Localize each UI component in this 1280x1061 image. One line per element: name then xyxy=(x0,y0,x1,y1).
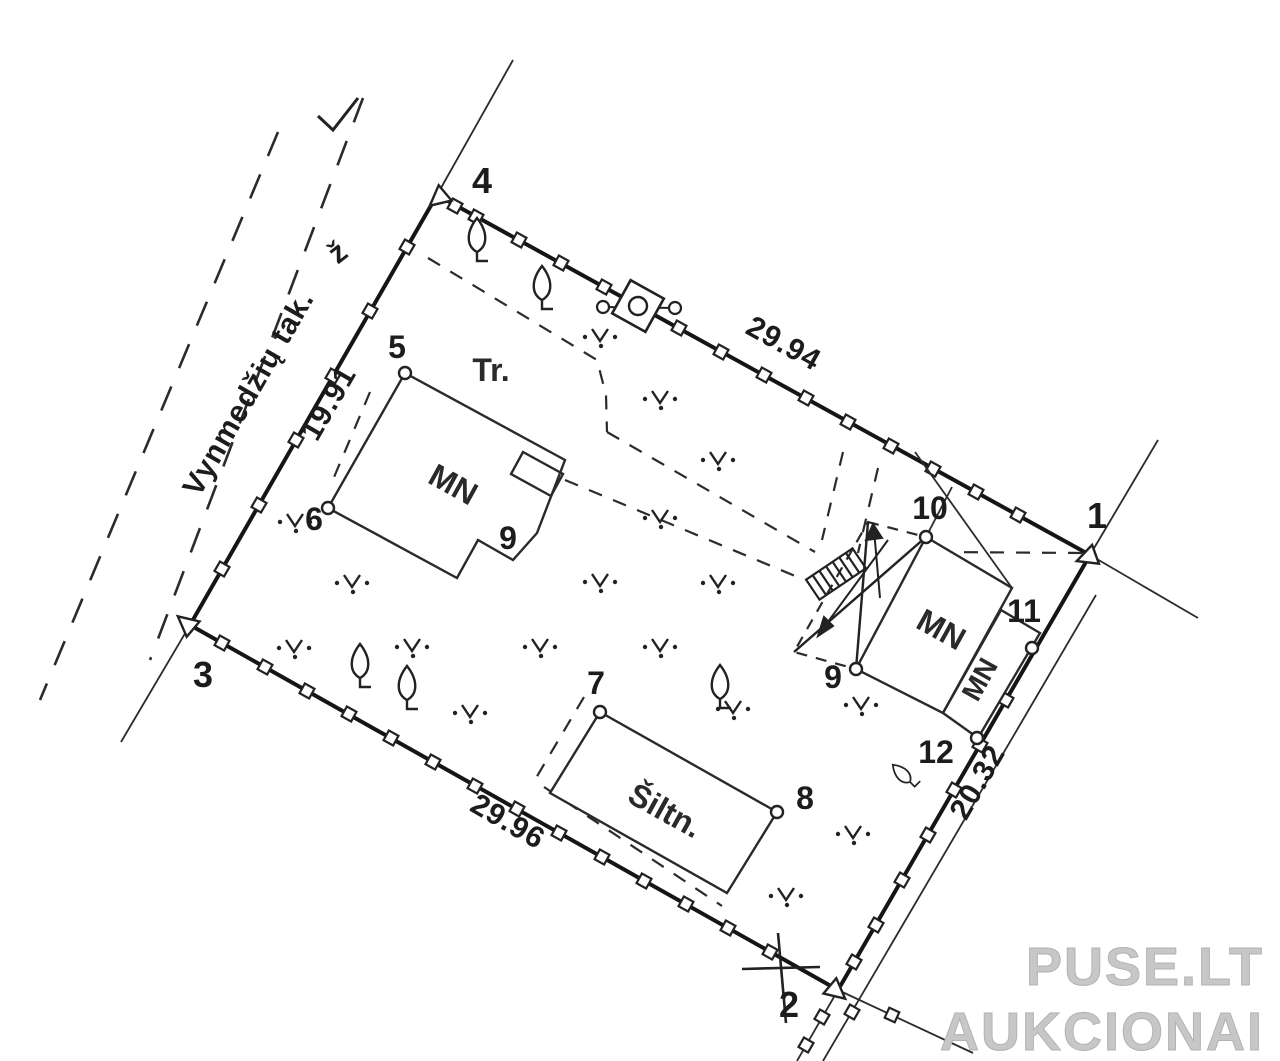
watermark: PUSE.LT AUKCIONAI xyxy=(940,937,1264,1061)
point-label-12: 12 xyxy=(918,734,954,770)
point-label-11: 11 xyxy=(1007,593,1041,629)
point-label-7: 7 xyxy=(587,665,605,701)
point-label-6: 6 xyxy=(305,501,323,537)
street-abbr: ž xyxy=(322,235,355,271)
dimension-south: 29.96 xyxy=(465,787,551,856)
dimension-west: 19.91 xyxy=(294,360,363,446)
point-label-9-outbuilding: 9 xyxy=(824,659,842,695)
corner-label-4: 4 xyxy=(472,160,492,201)
point-label-9-house: 9 xyxy=(499,520,517,556)
cadastral-plan: 4 1 3 2 5 6 7 8 9 9 10 11 12 29.94 19.91… xyxy=(0,0,1280,1061)
grass-symbols xyxy=(277,329,878,907)
stairs-icon xyxy=(806,548,866,599)
point-label-8: 8 xyxy=(796,780,814,816)
adjacent-boundary-lines xyxy=(121,60,1198,1061)
corner-label-3: 3 xyxy=(193,654,213,695)
point-label-5: 5 xyxy=(388,329,406,365)
direction-arrow-down xyxy=(818,540,888,636)
corner-label-2: 2 xyxy=(779,984,799,1025)
plan-drawing: 4 1 3 2 5 6 7 8 9 9 10 11 12 29.94 19.91… xyxy=(0,0,1280,1061)
corner-label-1: 1 xyxy=(1087,495,1107,536)
watermark-line1: PUSE.LT xyxy=(1026,937,1264,997)
road-gate-mark xyxy=(318,98,358,130)
shrub-icon xyxy=(889,759,921,791)
point-label-10: 10 xyxy=(912,490,948,526)
area-abbr: Tr. xyxy=(472,352,509,388)
watermark-line2: AUKCIONAI xyxy=(940,1002,1264,1061)
street-name: Vynmedžių tak. xyxy=(177,285,321,502)
